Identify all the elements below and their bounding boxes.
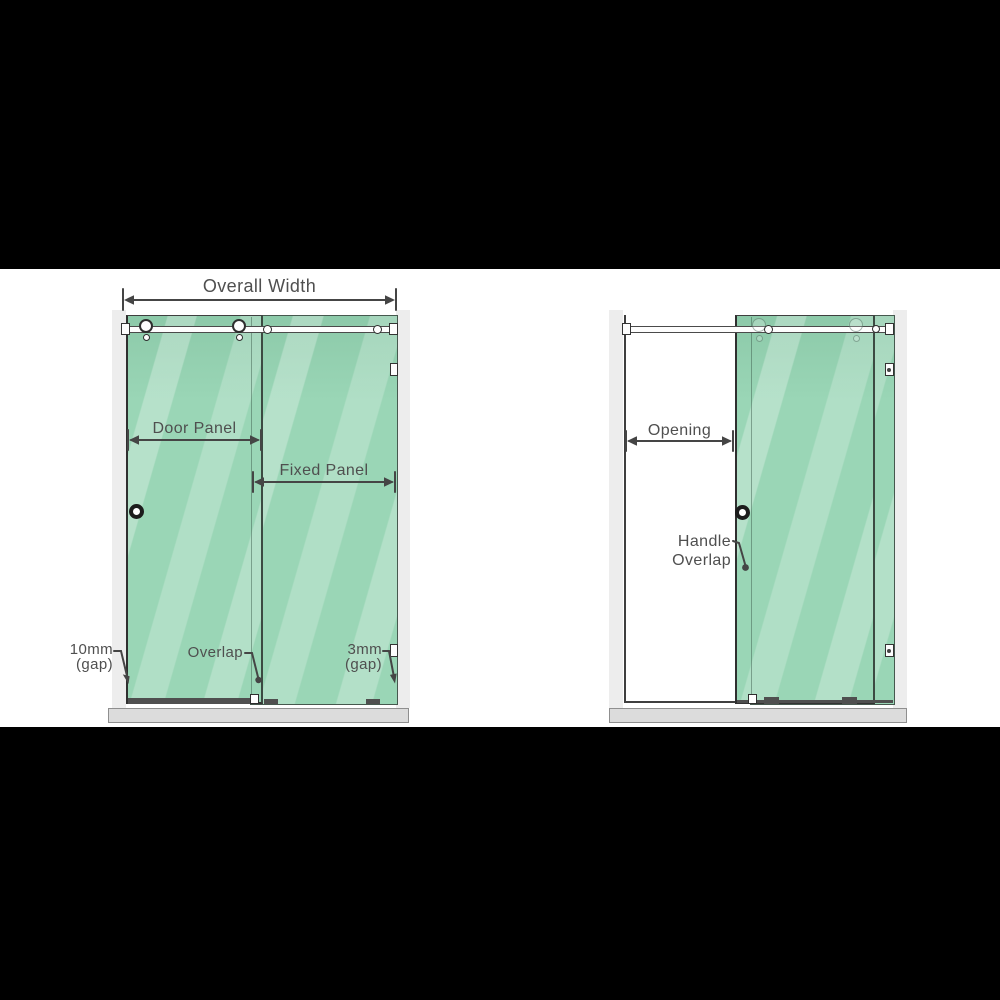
roller-icon [139,319,153,333]
roller-stop-icon [236,334,243,341]
fixed-panel-edge-through-glass [251,317,252,701]
bottom-clamp-icon [264,699,278,704]
fixed-panel-edge-through-glass [751,317,752,701]
roller-stop-icon-faint [853,335,860,342]
wall-clamp-icon [885,363,894,376]
shower-door-diagram: Overall Width Door Panel Fixed Panel 10m… [0,0,1000,1000]
bottom-track-line [626,701,737,703]
roller-icon [232,319,246,333]
roller-icon-faint [849,318,863,332]
left-diagram-left-wall [112,310,126,708]
roller-stop-icon [143,334,150,341]
door-panel-label: Door Panel [127,421,262,437]
left-gap-label: 10mm (gap) [40,642,113,672]
right-rail-bracket-left [622,323,631,335]
handle-label-line2: Overlap [640,551,731,570]
door-knob-icon [129,504,144,519]
left-shower-tray [108,708,409,723]
opening-wall-edge-line [624,315,626,703]
roller-stop-icon-faint [756,335,763,342]
bottom-clamp-icon [764,697,779,704]
rail-fixing-icon [764,325,773,334]
right-gap-unit: (gap) [310,657,382,672]
right-diagram-left-wall [609,310,623,708]
right-gap-value: 3mm [310,642,382,657]
handle-label-line1: Handle [640,532,731,551]
right-diagram-right-wall [893,310,907,708]
overall-width-label: Overall Width [123,277,396,295]
clamp-screw-icon [887,368,891,372]
rail-fixing-icon [263,325,272,334]
rail-fixing-icon [373,325,382,334]
right-gap-label: 3mm (gap) [310,642,382,672]
right-rail-bracket-right [885,323,894,335]
wall-clamp-icon [390,363,398,376]
left-rail-bracket-right [389,323,398,335]
floor-guide-icon [250,694,259,704]
clamp-screw-icon [887,649,891,653]
right-shower-tray [609,708,907,723]
left-gap-value: 10mm [40,642,113,657]
left-gap-unit: (gap) [40,657,113,672]
open-bottom-seal [737,700,893,703]
handle-overlap-label: Handle Overlap [640,532,731,570]
left-rail-bracket-left [121,323,130,335]
opening-label: Opening [626,423,733,439]
door-panel-glass-open [735,315,875,704]
bottom-clamp-icon [842,697,857,704]
bottom-clamp-icon [366,699,380,704]
door-bottom-seal [128,698,254,704]
fixed-panel-label: Fixed Panel [252,463,396,479]
door-knob-icon-open [735,505,750,520]
overlap-label: Overlap [160,645,243,660]
floor-guide-icon [748,694,757,704]
left-top-rail [126,326,392,333]
wall-clamp-icon [885,644,894,657]
rail-fixing-icon [872,325,880,333]
wall-clamp-icon [390,644,398,657]
left-diagram-right-wall [396,310,410,708]
